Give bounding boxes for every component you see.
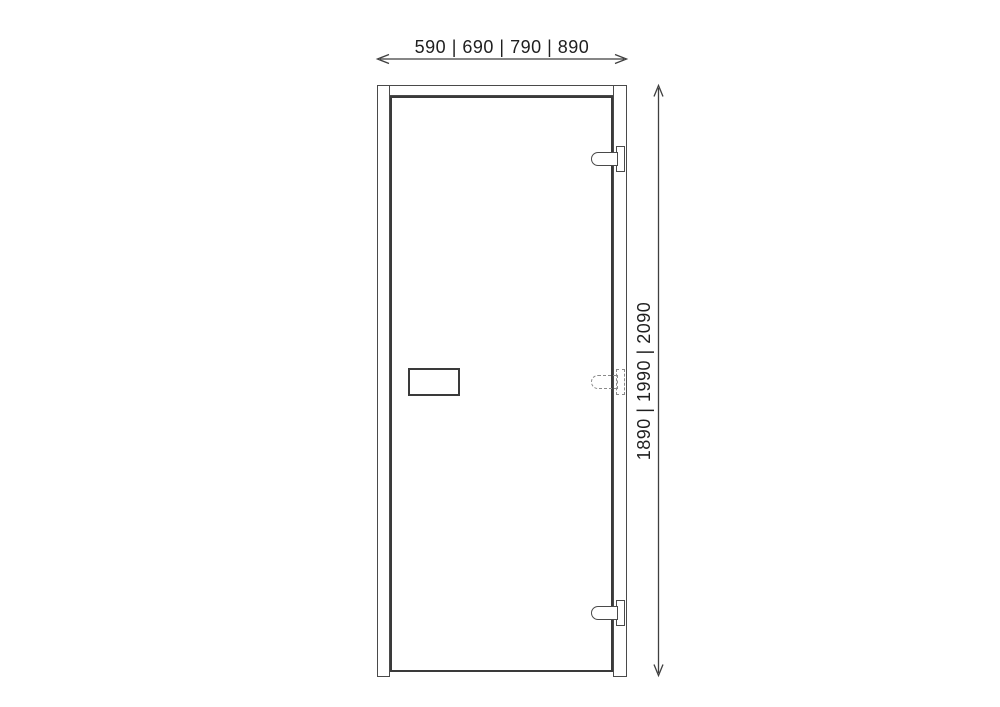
hinge-bottom [591,600,625,626]
hinge-top [591,146,625,172]
width-dimension-label: 590 | 690 | 790 | 890 [377,37,627,57]
hinge-barrel [591,152,618,166]
door-frame-left-jamb [377,85,390,677]
height-dimension-label: 1890 | 1990 | 2090 [634,231,654,531]
door-diagram: 590 | 690 | 790 | 890 1890 | 1990 | 2090 [0,0,1000,707]
height-dimension-arrow [654,86,663,676]
hinge-middle-optional [591,369,625,395]
handle-lock-plate [408,368,460,396]
hinge-barrel [591,606,618,620]
hinge-barrel [591,375,618,389]
door-frame-head [377,85,627,96]
